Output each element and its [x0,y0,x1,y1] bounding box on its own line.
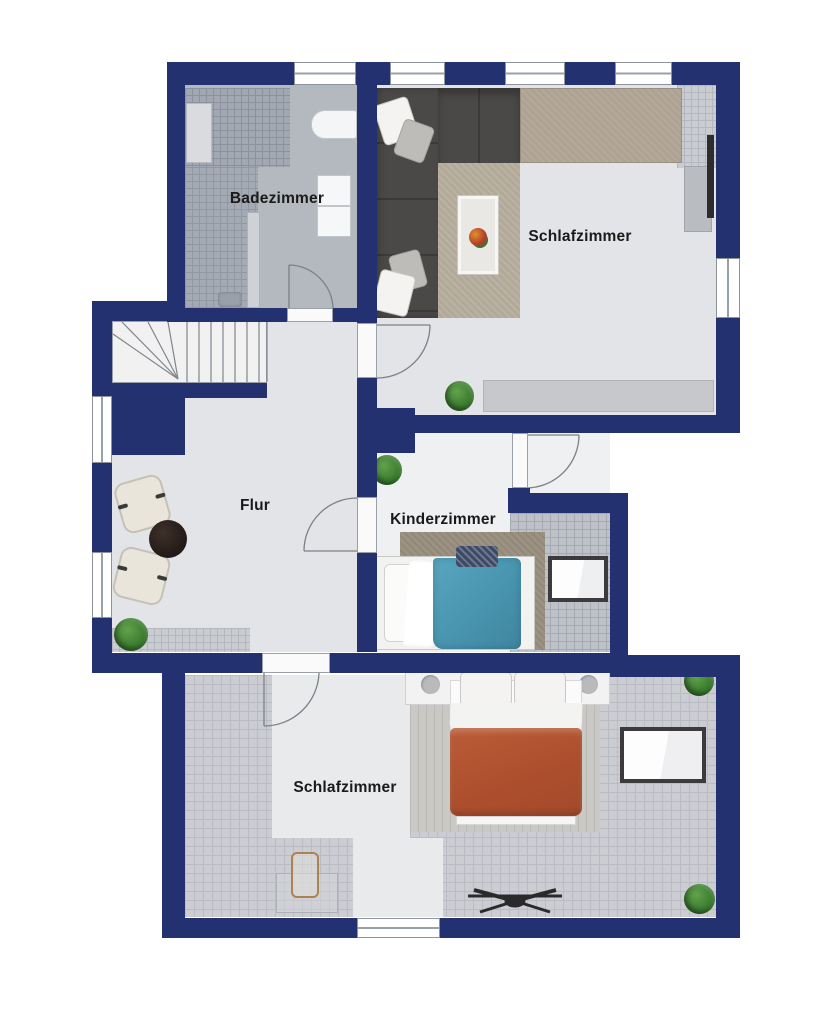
wall-stair-block [112,398,185,455]
corner-sofa-top [438,88,520,163]
wall-bottom-west [162,673,185,938]
bathtub [311,110,357,139]
room-label-schlafzimmer-top: Schlafzimmer [528,228,631,246]
bed-footboard [456,816,576,825]
toilet [218,292,242,307]
door-bedroom-bottom [262,653,330,673]
chair [291,852,319,898]
wall-bath-west [167,62,185,321]
window-west-2 [92,552,112,618]
window-west-1 [92,396,112,463]
wardrobe [520,88,682,163]
window-top-1 [294,62,356,85]
room-label-kinderzimmer: Kinderzimmer [390,511,496,529]
bed-sheet-fold [450,703,583,731]
room-label-badezimmer: Badezimmer [230,190,324,208]
double-bed-duvet [450,728,582,816]
nightstand-knob [421,675,440,694]
bedroom-top-sideboard [483,380,714,412]
skylight-kids [548,556,608,602]
door-kids-room [357,497,377,553]
bedroom-bottom-floor-a [272,675,410,838]
wall-middle-south [92,653,610,673]
door-kids-niche [512,433,528,488]
wall-stairs-south [112,383,267,398]
wall-niche-south [508,493,628,513]
food-plate [469,228,487,246]
window-top-3 [505,62,565,85]
floor-plan: Badezimmer Schlafzimmer Flur Kinderzimme… [0,0,832,1024]
bed-pillow [460,672,512,706]
window-east [716,258,740,318]
wall-bottom-east [716,655,740,938]
door-bedroom-top [357,323,377,378]
room-label-schlafzimmer-bottom: Schlafzimmer [293,779,396,797]
plant [445,381,474,411]
kids-bed-duvet [433,558,521,649]
kids-bed-cushion [456,546,498,567]
wall-bottom-south [162,918,740,938]
plant [684,884,715,914]
window-top-4 [615,62,672,85]
window-bottom [357,918,440,938]
bedroom-bottom-floor-b [353,838,443,917]
window-top-2 [390,62,445,85]
skylight-bottom [620,727,706,783]
wall-bedroom-top-south [361,415,716,433]
bed-pillow [514,672,566,706]
round-coffee-table [149,520,187,558]
shower-glass [247,212,260,308]
room-label-flur: Flur [240,497,270,515]
plant [114,618,148,651]
shower-tray [186,103,212,163]
wall-kids-east [610,513,628,655]
wall-east-top [716,62,740,433]
door-bathroom [287,308,333,322]
tv [707,135,714,218]
staircase [112,321,267,383]
